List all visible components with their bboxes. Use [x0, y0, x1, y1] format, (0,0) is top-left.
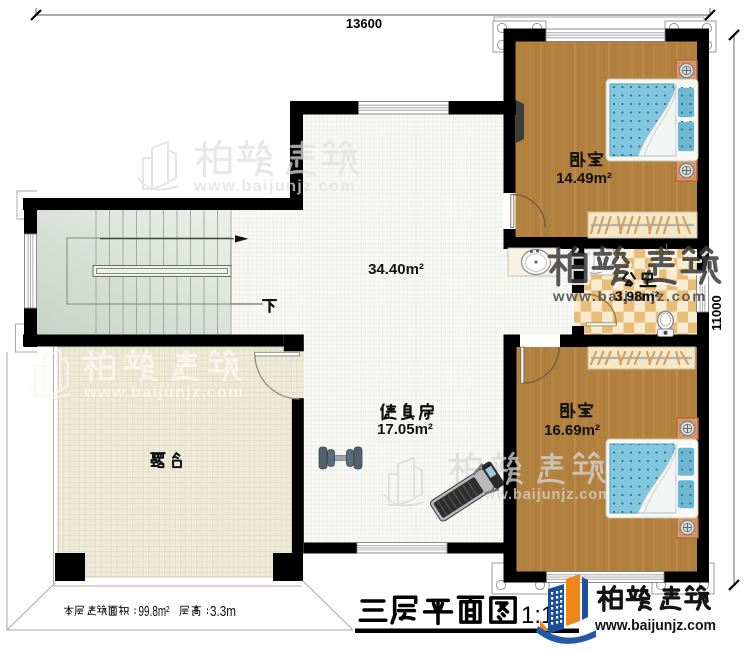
svg-text:3.3m: 3.3m [210, 604, 236, 620]
svg-text:13600: 13600 [346, 16, 382, 31]
svg-text:16.69m²: 16.69m² [544, 422, 600, 439]
svg-text:17.05m²: 17.05m² [377, 421, 433, 438]
svg-text:14.49m²: 14.49m² [556, 170, 612, 187]
svg-text:3.98m²: 3.98m² [615, 288, 660, 304]
svg-text:www.baijunjz.com: www.baijunjz.com [83, 384, 244, 401]
svg-text:www.baijunjz.com: www.baijunjz.com [193, 178, 356, 195]
svg-text:34.40m²: 34.40m² [368, 261, 424, 278]
svg-text:www.baijunjz.com: www.baijunjz.com [594, 617, 716, 634]
svg-text:11000: 11000 [709, 295, 724, 330]
svg-text:99.8m²: 99.8m² [139, 604, 170, 620]
